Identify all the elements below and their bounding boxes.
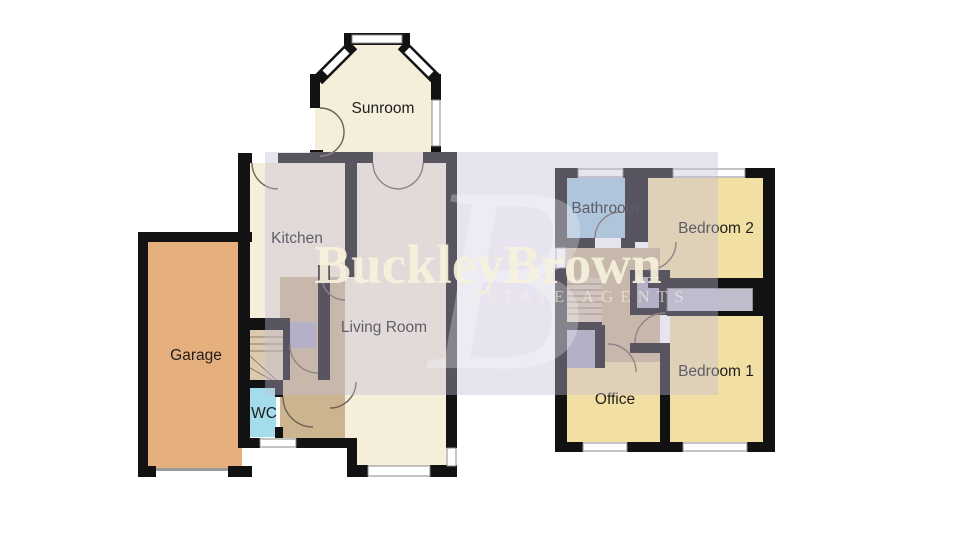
- wall: [627, 442, 683, 452]
- wall: [347, 438, 357, 467]
- wall: [238, 153, 250, 448]
- wall: [753, 283, 763, 313]
- wall: [138, 466, 156, 477]
- wall: [347, 465, 368, 477]
- wall: [238, 438, 260, 448]
- window: [352, 35, 402, 43]
- wall: [296, 438, 352, 448]
- wall: [138, 232, 252, 242]
- wall: [228, 466, 252, 477]
- watermark-brand: BuckleyBrown: [314, 234, 661, 295]
- window: [260, 439, 296, 447]
- window: [583, 443, 627, 451]
- garage-label: Garage: [170, 347, 222, 364]
- window: [368, 466, 430, 476]
- wall: [555, 442, 583, 452]
- watermark: B BuckleyBrown ESTATE AGENTS: [265, 133, 718, 426]
- window: [447, 448, 456, 466]
- wall: [430, 465, 457, 477]
- wall: [763, 168, 775, 452]
- wall: [747, 442, 775, 452]
- sunroom-label: Sunroom: [352, 100, 415, 117]
- wall: [275, 427, 283, 438]
- floorplan-page: Sunroom Kitchen Garage WC Living Room: [0, 0, 980, 542]
- bay-floor: [352, 448, 446, 466]
- floorplan-drawing: Sunroom Kitchen Garage WC Living Room: [0, 0, 980, 542]
- wall: [431, 74, 441, 100]
- wall: [310, 74, 320, 108]
- wc-label: WC: [251, 405, 277, 422]
- watermark-tagline: ESTATE AGENTS: [469, 287, 690, 306]
- garage-door-line: [156, 468, 228, 471]
- window: [683, 443, 747, 451]
- wall: [138, 232, 148, 477]
